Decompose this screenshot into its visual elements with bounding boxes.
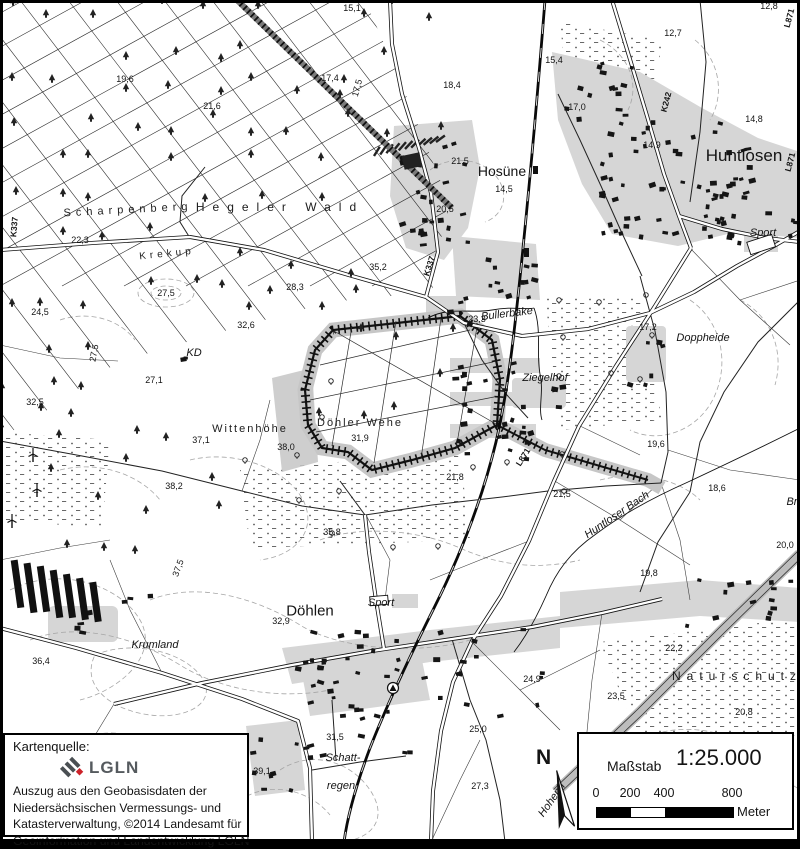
scale-tick: 200 (620, 786, 641, 800)
hostel-icon (388, 683, 399, 694)
lgln-logo: LGLN (59, 755, 239, 781)
scale-ratio: 1:25.000 (676, 745, 762, 771)
map-canvas (0, 0, 800, 842)
topographic-map: HosüneHuntlosenDöhlenScharpenbergHegeler… (0, 0, 800, 842)
attribution-line: Auszug aus den Geobasisdaten der (13, 783, 239, 800)
north-label: N (536, 746, 551, 770)
scale-tick: 0 (593, 786, 600, 800)
scale-unit: Meter (737, 804, 770, 819)
map-source-label: Kartenquelle: (13, 739, 239, 754)
compass-needle-icon (542, 768, 582, 834)
attribution-line: Niedersächsischen Vermessungs- und (13, 800, 239, 817)
lgln-logo-icon (59, 755, 87, 781)
lgln-logo-text: LGLN (89, 758, 139, 778)
station-icon (533, 166, 538, 174)
attribution-panel: Kartenquelle: LGLN Auszug aus den Geobas… (3, 733, 249, 837)
attribution-line: Katasterverwaltung, ©2014 Landesamt für (13, 816, 239, 833)
scale-tick: 800 (722, 786, 743, 800)
scale-label: Maßstab (607, 758, 661, 774)
attribution-line: Geoinformation und Landentwicklung LGLN (13, 833, 239, 849)
scale-tick: 400 (654, 786, 675, 800)
scale-bar (596, 807, 734, 818)
scale-panel: Maßstab 1:25.000 0 200 400 800 Meter (577, 732, 794, 830)
station-building (524, 248, 529, 257)
